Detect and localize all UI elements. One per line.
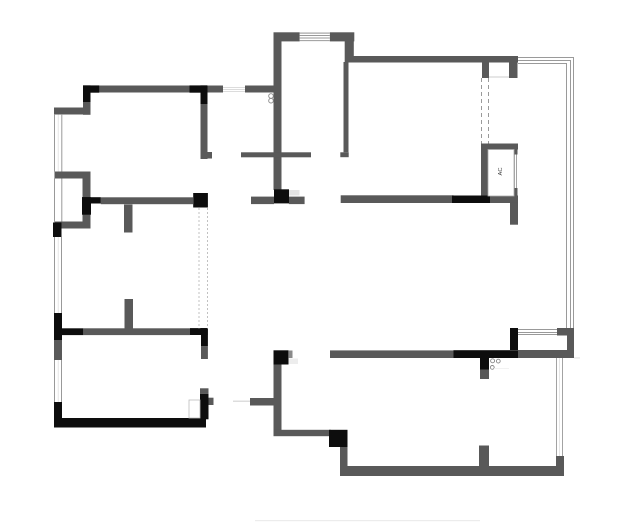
svg-text:AC: AC <box>498 167 504 175</box>
